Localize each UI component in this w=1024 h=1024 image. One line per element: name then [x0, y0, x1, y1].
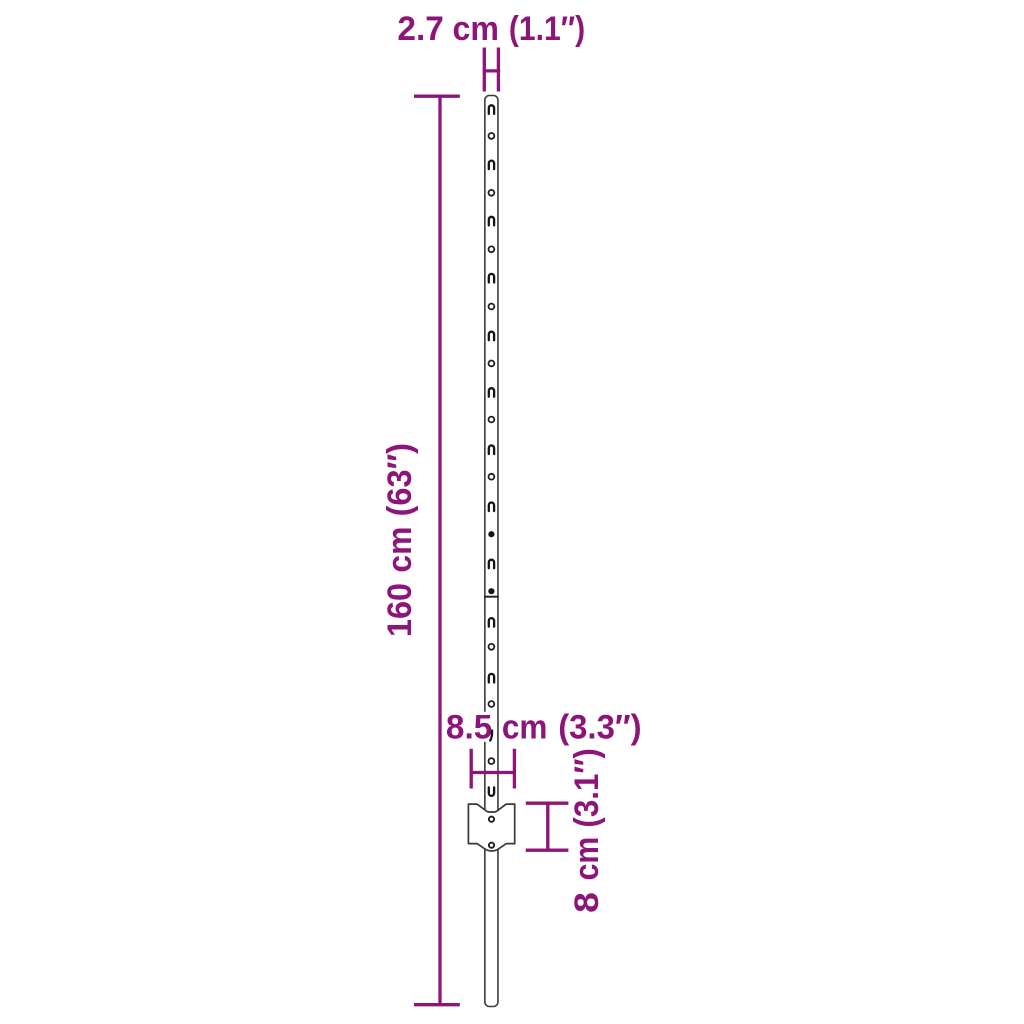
svg-text:160: 160	[381, 583, 419, 637]
svg-text:cm: cm	[502, 709, 548, 747]
svg-text:(3.3″): (3.3″)	[558, 709, 641, 747]
svg-text:cm: cm	[381, 527, 419, 573]
svg-text:8: 8	[568, 892, 606, 913]
svg-text:(3.1″): (3.1″)	[568, 748, 606, 827]
svg-text:cm: cm	[568, 837, 606, 881]
svg-text:2.7: 2.7	[397, 10, 444, 48]
svg-text:(1.1″): (1.1″)	[509, 10, 585, 48]
svg-text:cm: cm	[453, 10, 499, 48]
svg-text:(63″): (63″)	[381, 443, 419, 516]
svg-text:8.5: 8.5	[446, 709, 492, 747]
